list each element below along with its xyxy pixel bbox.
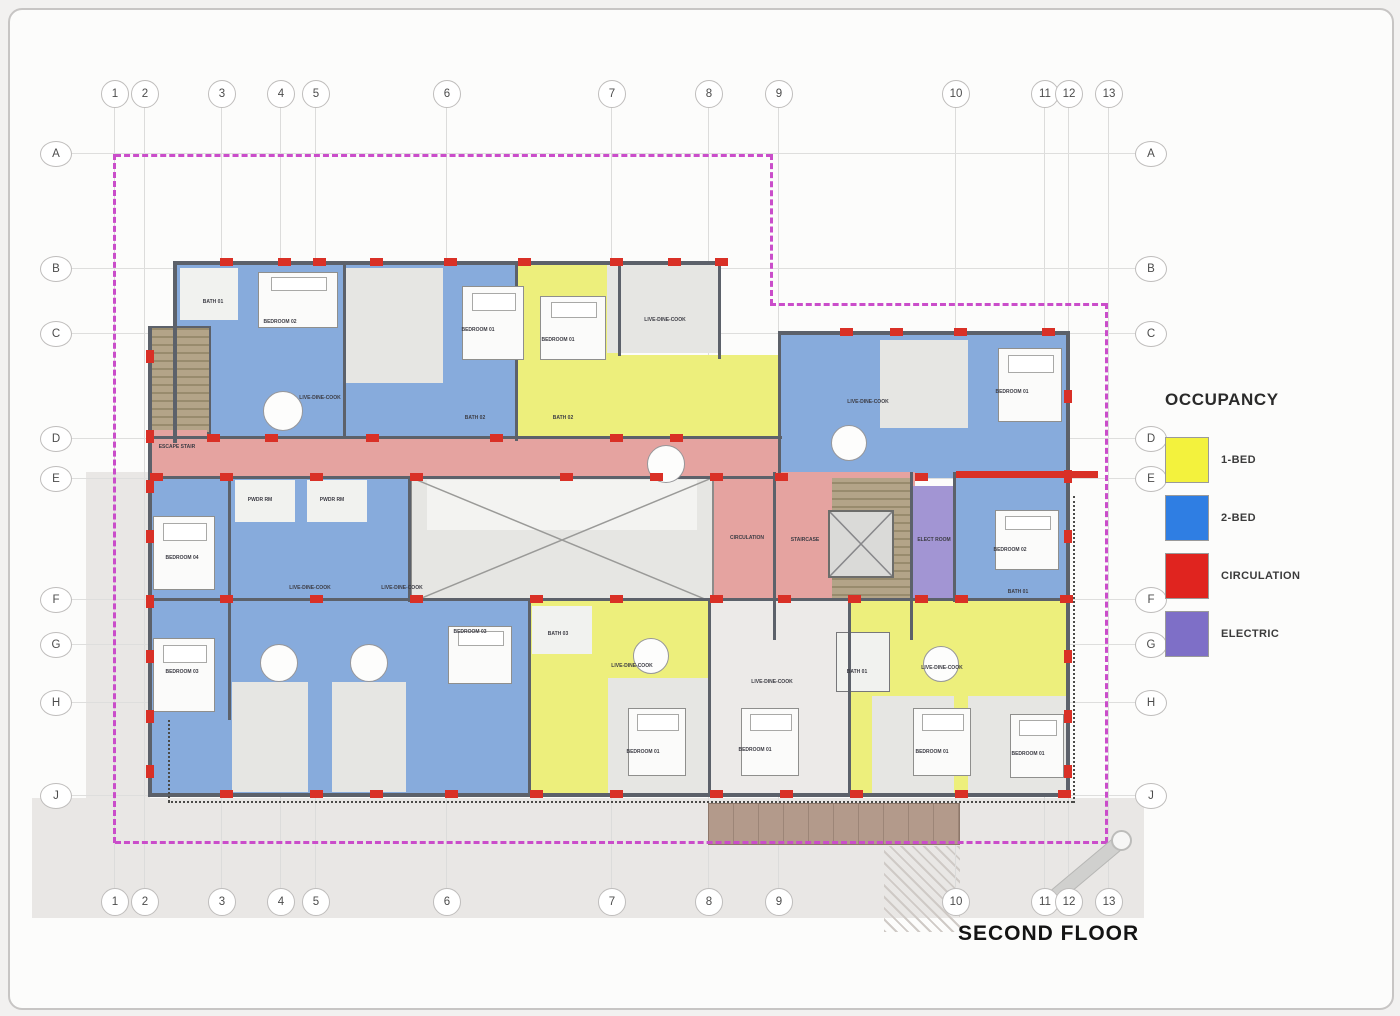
door-marker bbox=[780, 790, 793, 798]
door-marker bbox=[310, 790, 323, 798]
door-marker bbox=[220, 790, 233, 798]
bed-symbol bbox=[540, 296, 606, 360]
door-marker bbox=[915, 595, 928, 603]
door-marker bbox=[410, 473, 423, 481]
room-label: BEDROOM 01 bbox=[738, 747, 771, 753]
legend-swatch-1-bed bbox=[1165, 437, 1209, 483]
door-marker bbox=[1042, 328, 1055, 336]
legend-item-circulation: CIRCULATION bbox=[1165, 554, 1394, 598]
door-marker bbox=[775, 473, 788, 481]
grid-col-bubble-bottom-10: 10 bbox=[942, 888, 970, 916]
grid-col-bubble-top-2: 2 bbox=[131, 80, 159, 108]
door-marker bbox=[954, 328, 967, 336]
ground-shading-left bbox=[86, 472, 150, 798]
door-marker bbox=[313, 258, 326, 266]
living-lower-a bbox=[232, 682, 308, 792]
legend-title: OCCUPANCY bbox=[1165, 390, 1394, 410]
grid-col-bubble-top-10: 10 bbox=[942, 80, 970, 108]
grid-row-bubble-left-F: F bbox=[40, 587, 72, 613]
grid-col-bubble-bottom-12: 12 bbox=[1055, 888, 1083, 916]
ground-shading-bottom bbox=[32, 798, 1144, 918]
door-marker bbox=[778, 595, 791, 603]
room-label: BEDROOM 01 bbox=[995, 389, 1028, 395]
door-marker bbox=[850, 790, 863, 798]
door-marker bbox=[146, 595, 154, 608]
grid-row-bubble-left-G: G bbox=[40, 632, 72, 658]
door-marker bbox=[490, 434, 503, 442]
living-lower-b bbox=[332, 682, 406, 792]
room-label: BEDROOM 04 bbox=[165, 555, 198, 561]
door-marker bbox=[610, 434, 623, 442]
grid-col-bubble-bottom-5: 5 bbox=[302, 888, 330, 916]
door-marker bbox=[1058, 790, 1071, 798]
room-label: BEDROOM 03 bbox=[165, 669, 198, 675]
room-label: LIVE-DINE-COOK bbox=[299, 395, 340, 401]
site-dotted-right bbox=[1073, 496, 1075, 803]
corridor-horizontal bbox=[150, 438, 780, 478]
room-label: STAIRCASE bbox=[791, 537, 820, 543]
door-marker bbox=[220, 258, 233, 266]
room-label: BATH 01 bbox=[203, 299, 223, 305]
bath-upper-left bbox=[180, 268, 238, 320]
room-label: BEDROOM 03 bbox=[453, 629, 486, 635]
grid-col-bubble-bottom-13: 13 bbox=[1095, 888, 1123, 916]
door-marker bbox=[840, 328, 853, 336]
door-marker bbox=[1064, 470, 1072, 483]
room-label: BEDROOM 01 bbox=[461, 327, 494, 333]
room-label: LIVE-DINE-COOK bbox=[381, 585, 422, 591]
grid-row-bubble-right-G: G bbox=[1135, 632, 1167, 658]
bed-symbol bbox=[153, 516, 215, 590]
table-symbol bbox=[831, 425, 867, 461]
ramp-arrow-knob-icon bbox=[1111, 830, 1132, 851]
floor-plan-sheet: 1122334455667788991010111112121313AABBCC… bbox=[8, 8, 1394, 1010]
door-marker bbox=[518, 258, 531, 266]
room-label: BEDROOM 01 bbox=[626, 749, 659, 755]
open-void bbox=[410, 476, 714, 604]
grid-col-bubble-bottom-7: 7 bbox=[598, 888, 626, 916]
table-symbol bbox=[260, 644, 298, 682]
grid-row-bubble-left-B: B bbox=[40, 256, 72, 282]
room-label: BATH 01 bbox=[847, 669, 867, 675]
room-label: BEDROOM 01 bbox=[915, 749, 948, 755]
grid-col-bubble-bottom-8: 8 bbox=[695, 888, 723, 916]
grid-col-line-13 bbox=[1108, 106, 1109, 890]
grid-row-bubble-right-D: D bbox=[1135, 426, 1167, 452]
door-marker bbox=[1064, 650, 1072, 663]
room-label: BEDROOM 01 bbox=[1011, 751, 1044, 757]
room-label: LIVE-DINE-COOK bbox=[751, 679, 792, 685]
door-marker bbox=[610, 595, 623, 603]
site-dotted-left bbox=[168, 720, 170, 802]
grid-row-bubble-right-A: A bbox=[1135, 141, 1167, 167]
room-label: LIVE-DINE-COOK bbox=[644, 317, 685, 323]
grid-col-bubble-bottom-3: 3 bbox=[208, 888, 236, 916]
door-marker bbox=[366, 434, 379, 442]
grid-col-bubble-top-12: 12 bbox=[1055, 80, 1083, 108]
room-label: BEDROOM 02 bbox=[993, 547, 1026, 553]
legend-swatch-circulation bbox=[1165, 553, 1209, 599]
grid-row-bubble-left-A: A bbox=[40, 141, 72, 167]
grid-col-bubble-bottom-1: 1 bbox=[101, 888, 129, 916]
room-label: BATH 02 bbox=[465, 415, 485, 421]
door-marker bbox=[955, 595, 968, 603]
door-marker bbox=[1064, 710, 1072, 723]
room-label: BATH 03 bbox=[548, 631, 568, 637]
grid-col-bubble-top-7: 7 bbox=[598, 80, 626, 108]
door-marker bbox=[265, 434, 278, 442]
room-label: PWDR RM bbox=[248, 497, 272, 503]
bed-symbol bbox=[1010, 714, 1064, 778]
occupancy-legend: OCCUPANCY 1-BED2-BEDCIRCULATIONELECTRIC bbox=[1165, 390, 1394, 670]
table-symbol bbox=[263, 391, 303, 431]
door-marker bbox=[610, 790, 623, 798]
door-marker bbox=[220, 595, 233, 603]
legend-item-2-bed: 2-BED bbox=[1165, 496, 1394, 540]
door-marker bbox=[1064, 390, 1072, 403]
room-label: BATH 01 bbox=[1008, 589, 1028, 595]
grid-row-bubble-right-C: C bbox=[1135, 321, 1167, 347]
door-marker bbox=[207, 434, 220, 442]
door-marker bbox=[146, 710, 154, 723]
floor-title: SECOND FLOOR bbox=[958, 922, 1139, 946]
bed-symbol bbox=[741, 708, 799, 776]
table-symbol bbox=[350, 644, 388, 682]
door-marker bbox=[410, 595, 423, 603]
door-marker bbox=[955, 790, 968, 798]
legend-swatch-electric bbox=[1165, 611, 1209, 657]
door-marker bbox=[715, 258, 728, 266]
door-marker bbox=[560, 473, 573, 481]
grid-row-bubble-right-J: J bbox=[1135, 783, 1167, 809]
room-label: CIRCULATION bbox=[730, 535, 764, 541]
screenshot-stage: 1122334455667788991010111112121313AABBCC… bbox=[0, 0, 1400, 1016]
room-label: LIVE-DINE-COOK bbox=[289, 585, 330, 591]
legend-swatch-2-bed bbox=[1165, 495, 1209, 541]
living-area-upper-b bbox=[607, 265, 720, 353]
door-marker bbox=[310, 473, 323, 481]
door-marker bbox=[278, 258, 291, 266]
door-marker bbox=[710, 595, 723, 603]
door-marker bbox=[146, 350, 154, 363]
grid-row-bubble-left-H: H bbox=[40, 690, 72, 716]
door-marker bbox=[670, 434, 683, 442]
door-marker bbox=[1064, 765, 1072, 778]
door-marker bbox=[650, 473, 663, 481]
room-label: LIVE-DINE-COOK bbox=[847, 399, 888, 405]
door-marker bbox=[710, 790, 723, 798]
living-area-upper-a bbox=[343, 268, 443, 383]
site-dotted-bottom bbox=[168, 801, 1073, 803]
escape-stair bbox=[150, 326, 211, 434]
bed-symbol bbox=[913, 708, 971, 776]
door-marker bbox=[146, 650, 154, 663]
room-label: BEDROOM 02 bbox=[263, 319, 296, 325]
door-marker bbox=[146, 530, 154, 543]
grid-row-bubble-left-E: E bbox=[40, 466, 72, 492]
grid-row-bubble-left-C: C bbox=[40, 321, 72, 347]
grid-col-bubble-top-1: 1 bbox=[101, 80, 129, 108]
bed-symbol bbox=[628, 708, 686, 776]
door-marker bbox=[370, 790, 383, 798]
door-marker bbox=[668, 258, 681, 266]
bed-symbol bbox=[462, 286, 524, 360]
table-symbol bbox=[923, 646, 959, 682]
bath-1bed-right bbox=[836, 632, 890, 692]
grid-col-bubble-top-4: 4 bbox=[267, 80, 295, 108]
legend-item-1-bed: 1-BED bbox=[1165, 438, 1394, 482]
door-marker bbox=[444, 258, 457, 266]
grid-col-bubble-bottom-2: 2 bbox=[131, 888, 159, 916]
living-area-right bbox=[880, 340, 968, 428]
bed-symbol bbox=[995, 510, 1059, 570]
room-label: ESCAPE STAIR bbox=[159, 444, 196, 450]
room-label: LIVE-DINE-COOK bbox=[611, 663, 652, 669]
bed-symbol bbox=[153, 638, 215, 712]
grid-row-bubble-left-D: D bbox=[40, 426, 72, 452]
door-marker bbox=[370, 258, 383, 266]
grid-col-line-2 bbox=[144, 106, 145, 890]
door-marker bbox=[710, 473, 723, 481]
door-marker bbox=[848, 595, 861, 603]
door-marker bbox=[146, 480, 154, 493]
grid-col-bubble-top-6: 6 bbox=[433, 80, 461, 108]
grid-col-bubble-top-8: 8 bbox=[695, 80, 723, 108]
grid-row-bubble-left-J: J bbox=[40, 783, 72, 809]
grid-row-bubble-right-E: E bbox=[1135, 466, 1167, 492]
door-marker bbox=[220, 473, 233, 481]
grid-row-bubble-right-H: H bbox=[1135, 690, 1167, 716]
grid-col-bubble-bottom-6: 6 bbox=[433, 888, 461, 916]
legend-item-label: ELECTRIC bbox=[1221, 628, 1279, 640]
legend-item-label: 1-BED bbox=[1221, 454, 1256, 466]
red-wall-bar-right bbox=[956, 471, 1098, 478]
grid-col-bubble-top-13: 13 bbox=[1095, 80, 1123, 108]
terrace bbox=[708, 803, 960, 845]
grid-col-bubble-top-5: 5 bbox=[302, 80, 330, 108]
door-marker bbox=[310, 595, 323, 603]
unit-1bed-top-ext bbox=[607, 355, 780, 440]
room-label: LIVE-DINE-COOK bbox=[921, 665, 962, 671]
legend-item-label: 2-BED bbox=[1221, 512, 1256, 524]
bed-symbol bbox=[998, 348, 1062, 422]
door-marker bbox=[1060, 595, 1073, 603]
room-label: PWDR RM bbox=[320, 497, 344, 503]
grid-row-bubble-right-F: F bbox=[1135, 587, 1167, 613]
door-marker bbox=[530, 790, 543, 798]
room-label: ELECT ROOM bbox=[917, 537, 950, 543]
room-label: BEDROOM 01 bbox=[541, 337, 574, 343]
door-marker bbox=[530, 595, 543, 603]
legend-item-label: CIRCULATION bbox=[1221, 570, 1300, 582]
bath-1bed-mid bbox=[532, 606, 592, 654]
legend-items: 1-BED2-BEDCIRCULATIONELECTRIC bbox=[1165, 438, 1394, 656]
door-marker bbox=[610, 258, 623, 266]
grid-col-bubble-bottom-9: 9 bbox=[765, 888, 793, 916]
door-marker bbox=[915, 473, 928, 481]
room-label: BATH 02 bbox=[553, 415, 573, 421]
door-marker bbox=[890, 328, 903, 336]
elevator-shaft bbox=[828, 510, 894, 578]
grid-col-bubble-bottom-4: 4 bbox=[267, 888, 295, 916]
door-marker bbox=[146, 430, 154, 443]
grid-col-bubble-top-3: 3 bbox=[208, 80, 236, 108]
grid-col-bubble-top-9: 9 bbox=[765, 80, 793, 108]
door-marker bbox=[1064, 530, 1072, 543]
door-marker bbox=[445, 790, 458, 798]
legend-item-electric: ELECTRIC bbox=[1165, 612, 1394, 656]
door-marker bbox=[146, 765, 154, 778]
grid-row-bubble-right-B: B bbox=[1135, 256, 1167, 282]
